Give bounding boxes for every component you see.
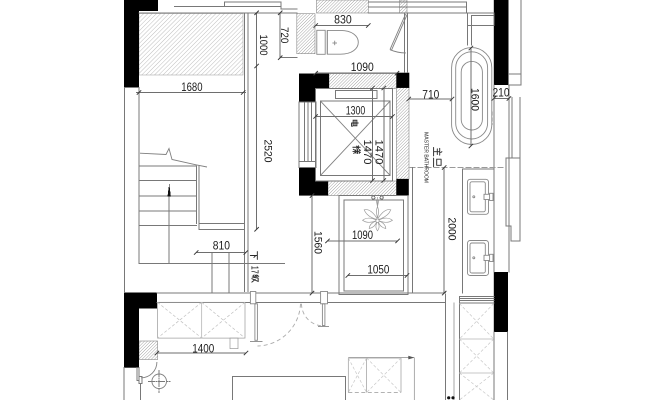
svg-text:1300: 1300 <box>346 104 366 118</box>
svg-text:1000: 1000 <box>257 35 269 56</box>
svg-text:1560: 1560 <box>311 231 323 254</box>
svg-text:1470: 1470 <box>373 140 385 165</box>
svg-text:1090: 1090 <box>352 228 373 242</box>
svg-text:810: 810 <box>213 239 230 253</box>
svg-text:1680: 1680 <box>181 80 202 94</box>
svg-text:1050: 1050 <box>367 263 389 277</box>
svg-text:830: 830 <box>334 13 352 27</box>
svg-text:1600: 1600 <box>469 88 481 111</box>
svg-text:2520: 2520 <box>262 140 274 163</box>
svg-text:720: 720 <box>278 27 290 44</box>
svg-text:17: 17 <box>249 266 260 274</box>
svg-text:1470: 1470 <box>361 140 373 165</box>
svg-text:710: 710 <box>422 88 439 102</box>
svg-text:MASTER BATHROOM: MASTER BATHROOM <box>423 132 429 183</box>
svg-text:210: 210 <box>493 86 510 100</box>
svg-text:1400: 1400 <box>192 342 214 356</box>
svg-text:1090: 1090 <box>351 60 374 74</box>
svg-text:2000: 2000 <box>445 218 457 241</box>
